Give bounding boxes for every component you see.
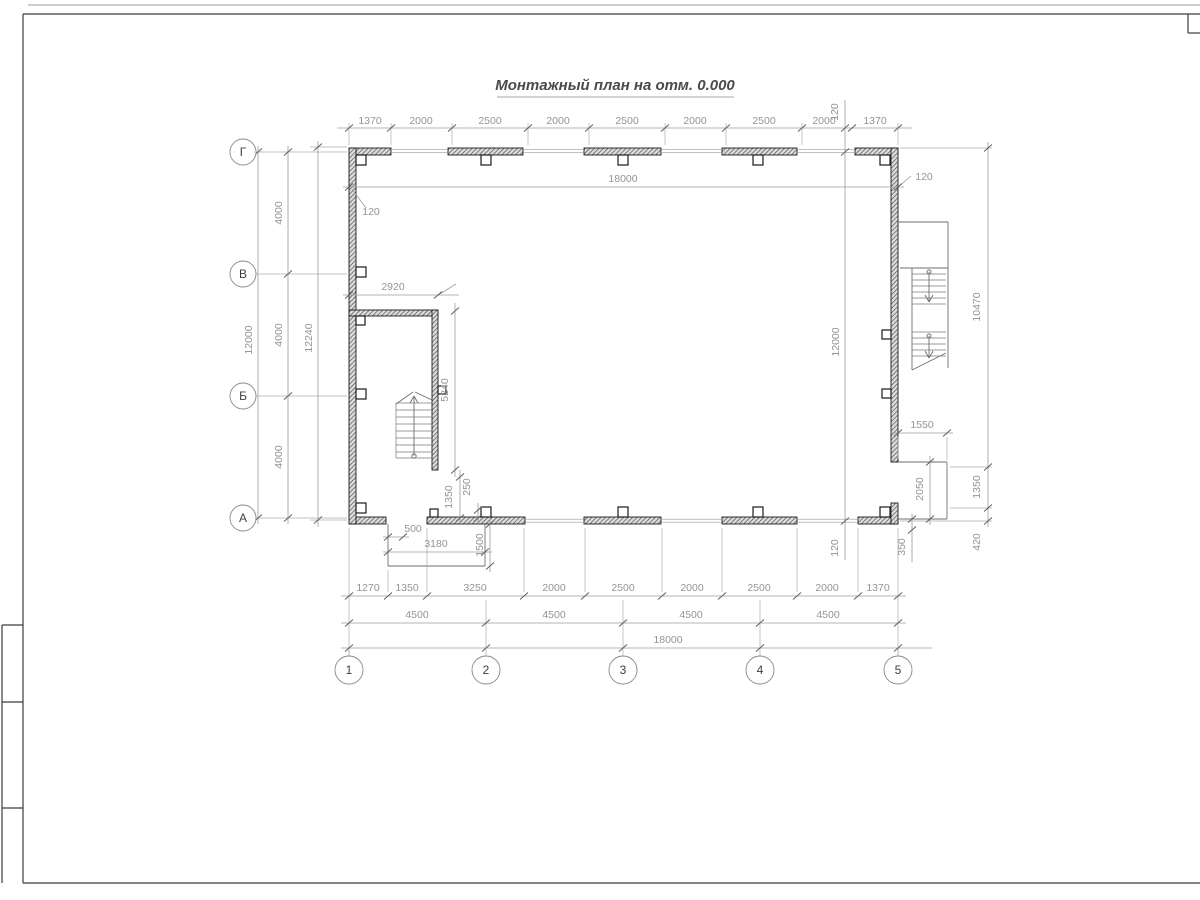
axis-label: В <box>239 267 247 281</box>
axis-label: Б <box>239 389 247 403</box>
dim-label: 1370 <box>358 115 382 127</box>
dim-label: 4000 <box>273 201 285 225</box>
dim-label: 2000 <box>409 115 433 127</box>
left-wall <box>349 148 356 524</box>
dim-label: 1550 <box>910 419 934 431</box>
dim-label: 4500 <box>816 609 840 621</box>
axis-markers: Г В Б А 1 2 3 4 <box>230 139 912 684</box>
dim-label: 5240 <box>439 378 451 402</box>
dim-label: 2500 <box>611 582 635 594</box>
axis-label: 5 <box>895 663 902 677</box>
dim-label: 12000 <box>830 327 842 356</box>
axis-label: 1 <box>346 663 353 677</box>
dim-label: 1270 <box>356 582 380 594</box>
dim-label: 1370 <box>863 115 887 127</box>
axis-row-b: Б <box>230 383 256 409</box>
axis-col-1: 1 <box>335 656 363 684</box>
dim-label: 4000 <box>273 323 285 347</box>
dim-label: 18000 <box>608 173 637 185</box>
page-title: Монтажный план на отм. 0.000 <box>495 77 735 94</box>
dim-label: 2000 <box>815 582 839 594</box>
window-lines <box>391 150 858 523</box>
dim-label: 120 <box>362 206 380 218</box>
dim-label: 4500 <box>405 609 429 621</box>
dim-label: 2500 <box>752 115 776 127</box>
drawing-title: Монтажный план на отм. 0.000 <box>495 77 735 97</box>
dim-label: 2920 <box>381 281 405 293</box>
dim-label: 10470 <box>971 292 983 321</box>
dim-label: 2500 <box>615 115 639 127</box>
axis-col-2: 2 <box>472 656 500 684</box>
dim-label: 2500 <box>478 115 502 127</box>
axis-label: А <box>239 511 247 525</box>
stair-up-arrow <box>396 392 432 458</box>
dim-label: 12000 <box>243 325 255 354</box>
dim-label: 3180 <box>424 538 448 550</box>
dim-label: 3250 <box>463 582 487 594</box>
dim-label: 1350 <box>395 582 419 594</box>
dim-label: 1350 <box>443 485 455 509</box>
stairwell-wall-vertical <box>432 310 438 470</box>
stairwell-wall-horizontal <box>349 310 438 316</box>
dim-label: 120 <box>915 171 933 183</box>
axis-col-3: 3 <box>609 656 637 684</box>
dim-label: 12240 <box>303 323 315 352</box>
floor-plan-canvas: Монтажный план на отм. 0.000 <box>0 0 1200 900</box>
axis-label: Г <box>240 145 247 159</box>
axis-row-a: А <box>230 505 256 531</box>
dim-label: 420 <box>971 533 983 551</box>
axis-label: 4 <box>757 663 764 677</box>
dim-label: 500 <box>404 523 422 535</box>
dim-label: 1350 <box>971 475 983 499</box>
right-wall <box>891 148 898 462</box>
dim-label: 1500 <box>474 533 486 557</box>
dim-label: 2000 <box>542 582 566 594</box>
dim-label: 250 <box>461 478 473 496</box>
building-walls <box>349 148 898 524</box>
dim-label: 1370 <box>866 582 890 594</box>
axis-col-5: 5 <box>884 656 912 684</box>
dimension-ticks <box>254 125 992 652</box>
dim-label: 4500 <box>542 609 566 621</box>
dim-label: 2000 <box>546 115 570 127</box>
axis-row-v: В <box>230 261 256 287</box>
stair-down-arrows <box>925 270 933 358</box>
axis-label: 3 <box>620 663 627 677</box>
dim-label: 2000 <box>683 115 707 127</box>
dim-label: 4500 <box>679 609 703 621</box>
dim-label: 350 <box>896 538 908 556</box>
right-stair <box>898 222 948 370</box>
axis-row-g: Г <box>230 139 256 165</box>
dim-label: 2500 <box>747 582 771 594</box>
page-frame <box>2 5 1200 883</box>
left-stair <box>396 392 432 458</box>
axis-col-4: 4 <box>746 656 774 684</box>
dim-label: 120 <box>829 103 841 121</box>
axis-label: 2 <box>483 663 490 677</box>
dim-label: 2000 <box>680 582 704 594</box>
dim-label: 18000 <box>653 634 682 646</box>
dim-label: 4000 <box>273 445 285 469</box>
dim-label: 120 <box>829 539 841 557</box>
dim-label: 2050 <box>914 477 926 501</box>
